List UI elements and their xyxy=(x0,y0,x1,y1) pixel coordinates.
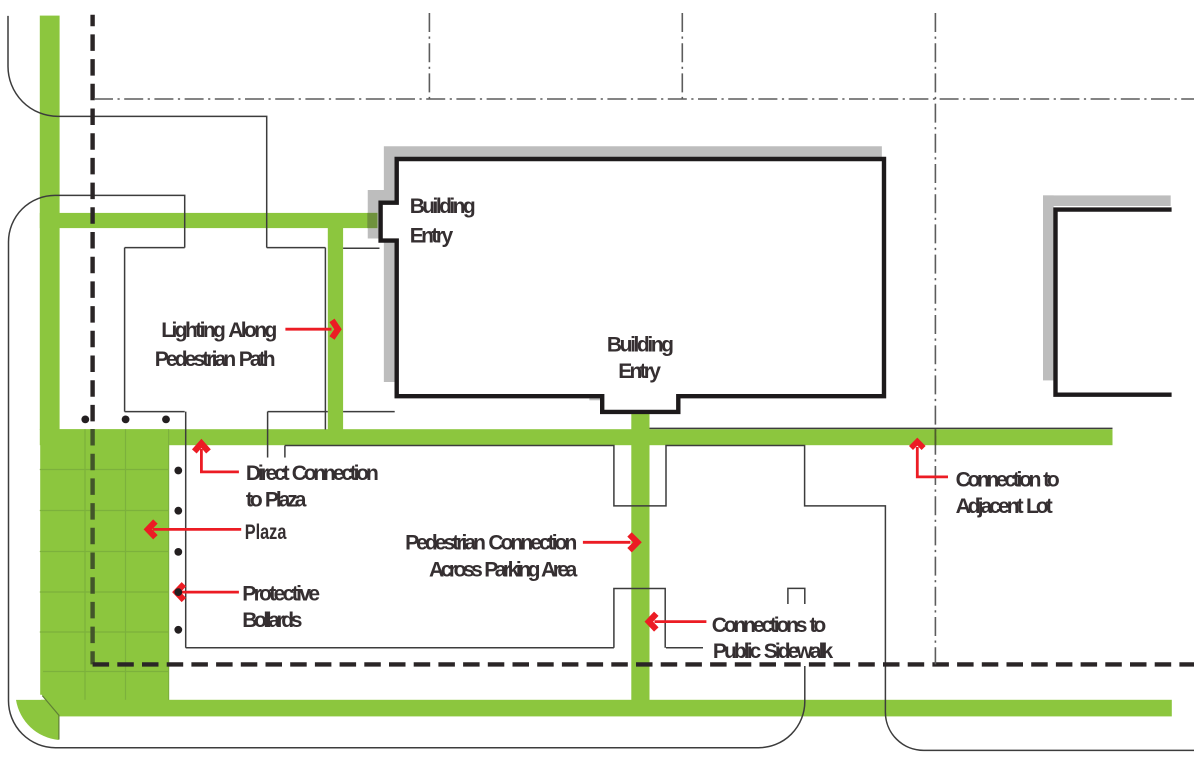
svg-text:Connections to: Connections to xyxy=(712,614,826,637)
svg-text:Lighting Along: Lighting Along xyxy=(161,319,277,342)
svg-text:to Plaza: to Plaza xyxy=(246,489,307,512)
svg-text:Plaza: Plaza xyxy=(245,521,287,544)
svg-text:Bollards: Bollards xyxy=(242,609,302,632)
svg-text:Adjacent Lot: Adjacent Lot xyxy=(956,495,1053,518)
svg-text:Pedestrian Connection: Pedestrian Connection xyxy=(405,532,577,555)
svg-text:Entry: Entry xyxy=(618,360,661,383)
svg-text:Pedestrian Path: Pedestrian Path xyxy=(155,348,276,371)
svg-text:Connection to: Connection to xyxy=(956,469,1060,492)
svg-text:Entry: Entry xyxy=(410,225,454,248)
svg-text:Building: Building xyxy=(410,195,476,218)
svg-text:Direct Connection: Direct Connection xyxy=(246,462,379,485)
svg-text:Building: Building xyxy=(607,333,674,356)
svg-text:Across Parking Area: Across Parking Area xyxy=(429,559,578,582)
svg-text:Protective: Protective xyxy=(242,582,320,605)
svg-text:Public Sidewalk: Public Sidewalk xyxy=(713,640,834,663)
